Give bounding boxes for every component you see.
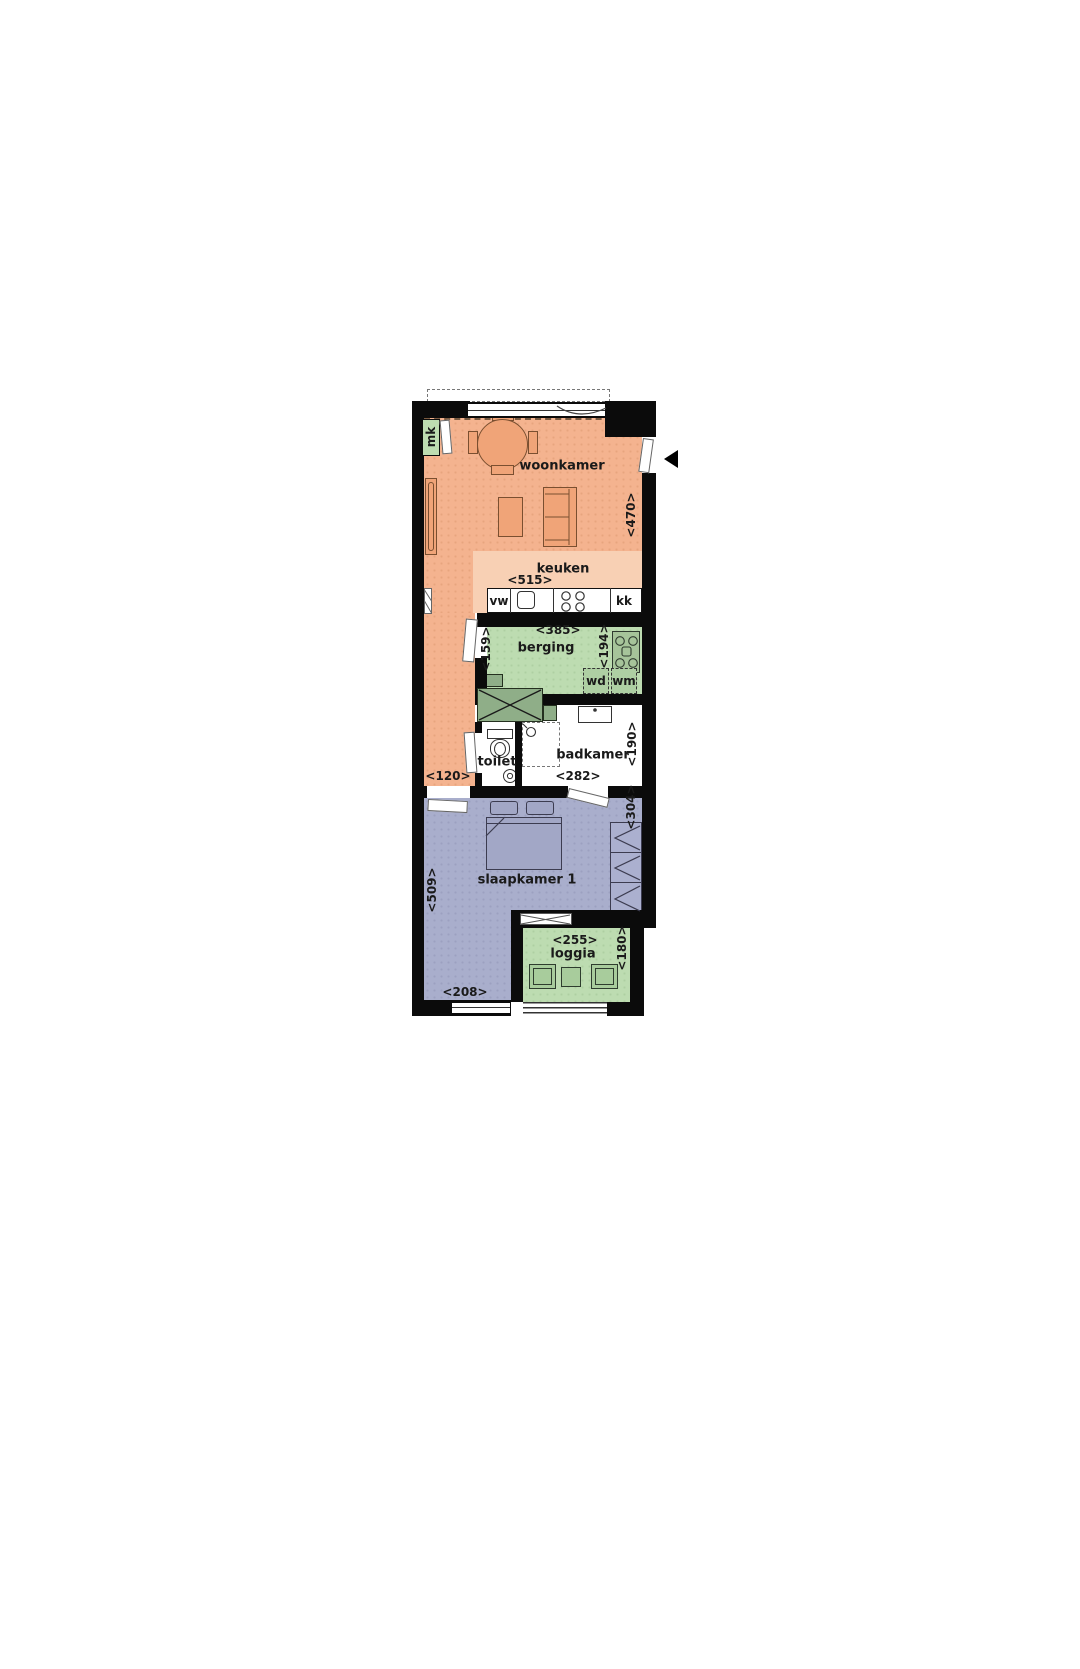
wall-loggia-bottom-corner [607,1002,644,1016]
label-woonkamer: woonkamer [519,459,604,474]
wall-top-left [412,401,470,418]
wall-toilet-left-upper [475,722,482,733]
label-badkamer: badkamer [556,748,630,763]
dim-slaapkamer-208: <208> [442,985,487,999]
loggia-chair-right-inner [595,968,614,985]
slaapkamer-door-leaf [427,799,468,813]
window-top [468,402,605,418]
dim-badkamer-190: <190> [625,721,639,766]
label-toilet: toilet [477,755,516,770]
wall-loggia-right [630,928,644,1002]
bed-pillow-right [526,801,554,815]
window-slaapkamer [452,1002,510,1014]
label-slaapkamer: slaapkamer 1 [478,873,577,888]
kitchen-sink [517,591,535,609]
counter-divider-2 [553,588,554,613]
shaft-box [477,688,543,722]
washer-label: wm [612,674,636,688]
entry-arrow-icon [664,450,678,468]
dryer-box: wd [583,668,609,694]
coffee-table [498,497,523,537]
label-koelkast: kk [616,594,632,608]
wall-loggia-left [511,928,523,1002]
label-vaatwasser: vw [490,594,509,608]
shaft-box-small [543,705,557,721]
loggia-chair-left-inner [533,968,552,985]
label-mk: mk [424,427,438,447]
wardrobe-divider-2 [610,882,642,883]
boiler-unit [612,631,640,673]
counter-divider-1 [510,588,511,613]
dim-loggia-180: <180> [615,925,629,970]
washer-box: wm [611,668,637,694]
loggia-railing [523,1002,607,1016]
dim-hal-120: <120> [425,769,470,783]
wall-slaapkamer-top-a [412,786,427,798]
wardrobe-divider-1 [610,852,642,853]
floorplan: wd wm [0,0,1080,1669]
label-loggia: loggia [550,947,595,962]
shower-area [522,722,560,767]
wall-toilet-left-lower [475,773,482,786]
loggia-table [561,967,581,987]
wall-berging-bottom [543,694,656,705]
wall-slaapkamer-top-b [470,786,568,798]
dim-badkamer-282: <282> [555,769,600,783]
wall-right [642,437,656,910]
wall-top-right-block [605,401,656,437]
dining-chair-right [528,431,538,454]
bed [486,817,562,870]
dim-slaapkamer-509: <509> [425,867,439,912]
washbasin [578,706,612,723]
dim-berging-159: <159> [479,626,493,671]
dim-slaapkamer-304: <304> [624,784,638,829]
dim-keuken-515: <515> [507,573,552,587]
dining-chair-bottom [491,465,514,475]
sofa [543,487,577,547]
dim-woonkamer-470: <470> [624,492,638,537]
toilet-cistern [487,729,513,739]
label-berging: berging [518,641,575,656]
wardrobe [610,822,642,913]
wall-left [412,401,424,1016]
bed-blanket-line [486,823,562,824]
bed-pillow-left [490,801,518,815]
dim-berging-194: <194> [597,623,611,668]
radiator [424,588,432,614]
dim-loggia-255: <255> [552,933,597,947]
loggia-chair-right [591,964,618,989]
loggia-chair-left [529,964,556,989]
toilet-door-leaf [464,732,478,774]
dining-chair-left [468,431,478,454]
dryer-label: wd [586,674,606,688]
dim-berging-385: <385> [535,623,580,637]
sideboard-inner [428,482,434,551]
berging-door-leaf [462,619,478,663]
counter-divider-3 [610,588,611,613]
loggia-sliding-door [520,913,572,925]
